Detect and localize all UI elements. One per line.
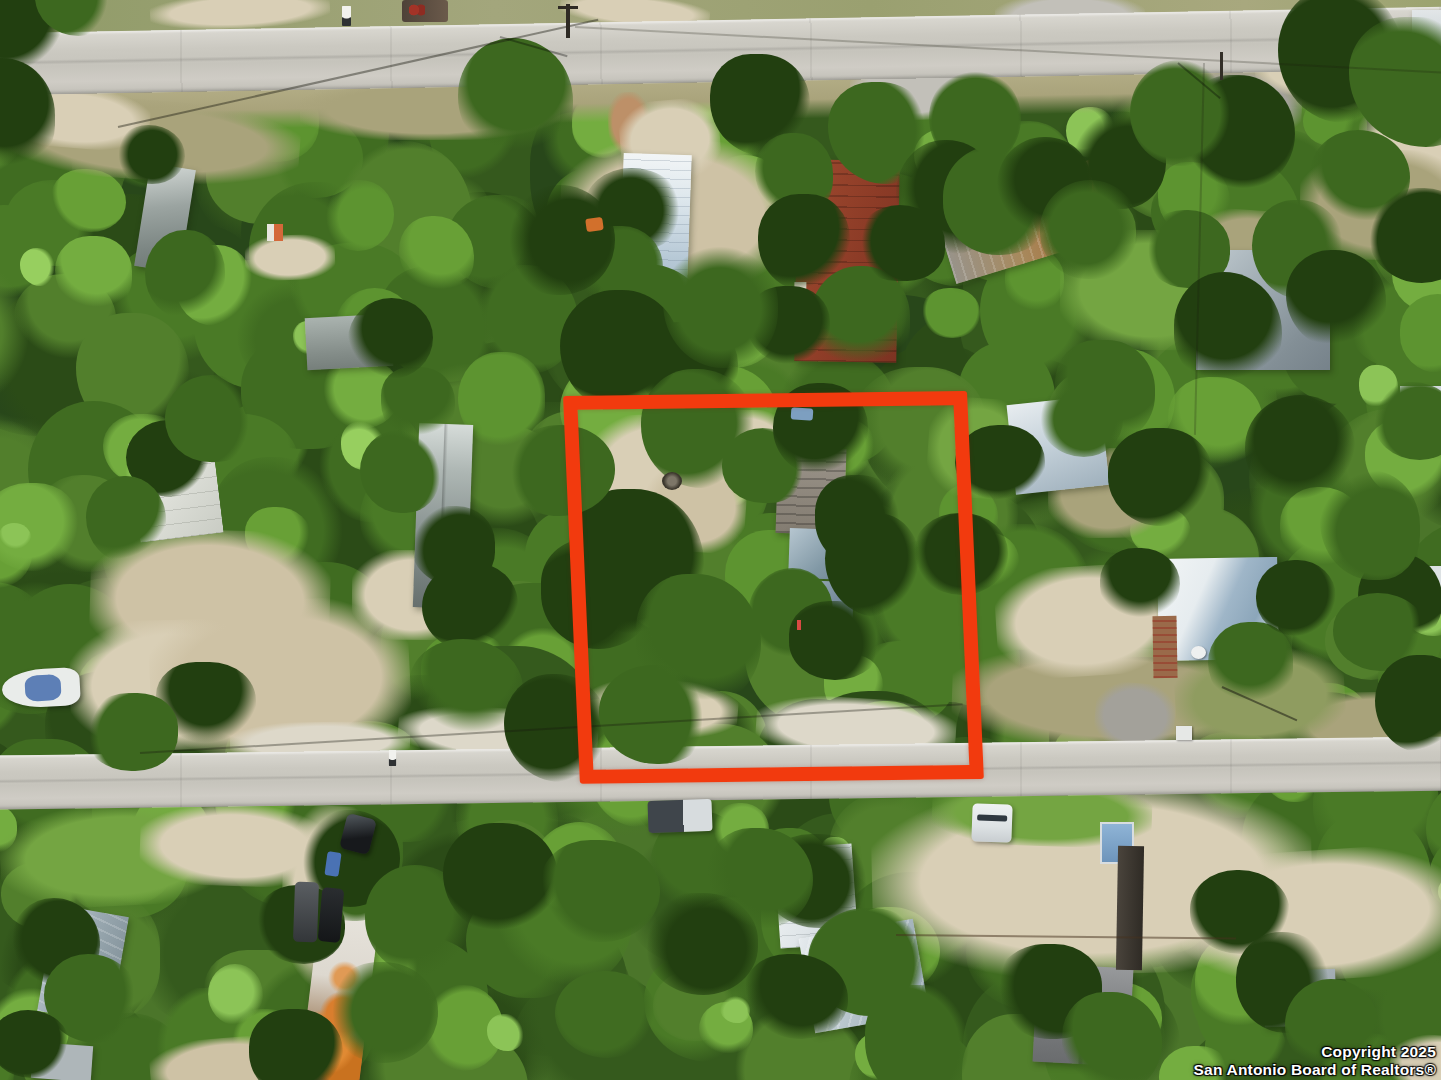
flatbed-truck-with-cargo — [402, 0, 448, 22]
neighbor-rusty-roof-section — [1152, 616, 1177, 678]
pedestrian-1 — [342, 6, 351, 26]
watermark-line1: Copyright 2025 — [1194, 1043, 1436, 1060]
hip-roof-house-wing — [1296, 252, 1332, 292]
orange-tarp-spot — [585, 217, 604, 232]
aerial-photo-scene: Copyright 2025 San Antonio Board of Real… — [0, 0, 1441, 1080]
edge-house-partial-2 — [1396, 566, 1441, 610]
white-pickup-truck — [971, 803, 1012, 842]
white-roof-shed — [1007, 395, 1110, 494]
cargo-container — [1116, 846, 1144, 970]
bottom-right-house — [1263, 969, 1337, 1027]
red-roof-house — [794, 159, 900, 363]
pedestrian-2 — [389, 750, 396, 766]
ground-clearing — [1176, 841, 1441, 989]
property-boundary-overlay — [563, 391, 984, 784]
pickup-truck — [647, 799, 712, 833]
boat-on-trailer — [1, 667, 81, 709]
utility-pole-2 — [1220, 52, 1223, 80]
narrow-metal-roof-house — [413, 423, 473, 609]
rv-trailer — [128, 433, 224, 542]
edge-house-partial-1 — [1400, 386, 1441, 450]
ground-clearing — [148, 1032, 302, 1080]
ground-clearing — [993, 560, 1180, 681]
utility-pole-1 — [566, 4, 570, 38]
small-gray-roof-house — [305, 314, 394, 370]
dark-van-1 — [293, 882, 319, 943]
utility-box — [1176, 726, 1192, 740]
dark-van-2 — [318, 887, 345, 943]
gray-shingle-roof-house — [1033, 964, 1134, 1067]
watermark: Copyright 2025 San Antonio Board of Real… — [1194, 1043, 1436, 1078]
corner-shed — [31, 1042, 93, 1080]
long-white-metal-roof-building — [616, 153, 691, 369]
orange-doghouse — [267, 224, 283, 241]
metal-shed-building — [37, 904, 129, 1023]
satellite-dish — [1191, 646, 1206, 659]
edge-house-partial-3 — [1412, 10, 1441, 66]
ground-clearing — [1172, 645, 1348, 750]
ground-clearing — [244, 234, 335, 282]
red-roof-house-wall — [794, 282, 807, 330]
ground-clearing — [1299, 149, 1441, 261]
watermark-line2: San Antonio Board of Realtors® — [1194, 1061, 1436, 1078]
